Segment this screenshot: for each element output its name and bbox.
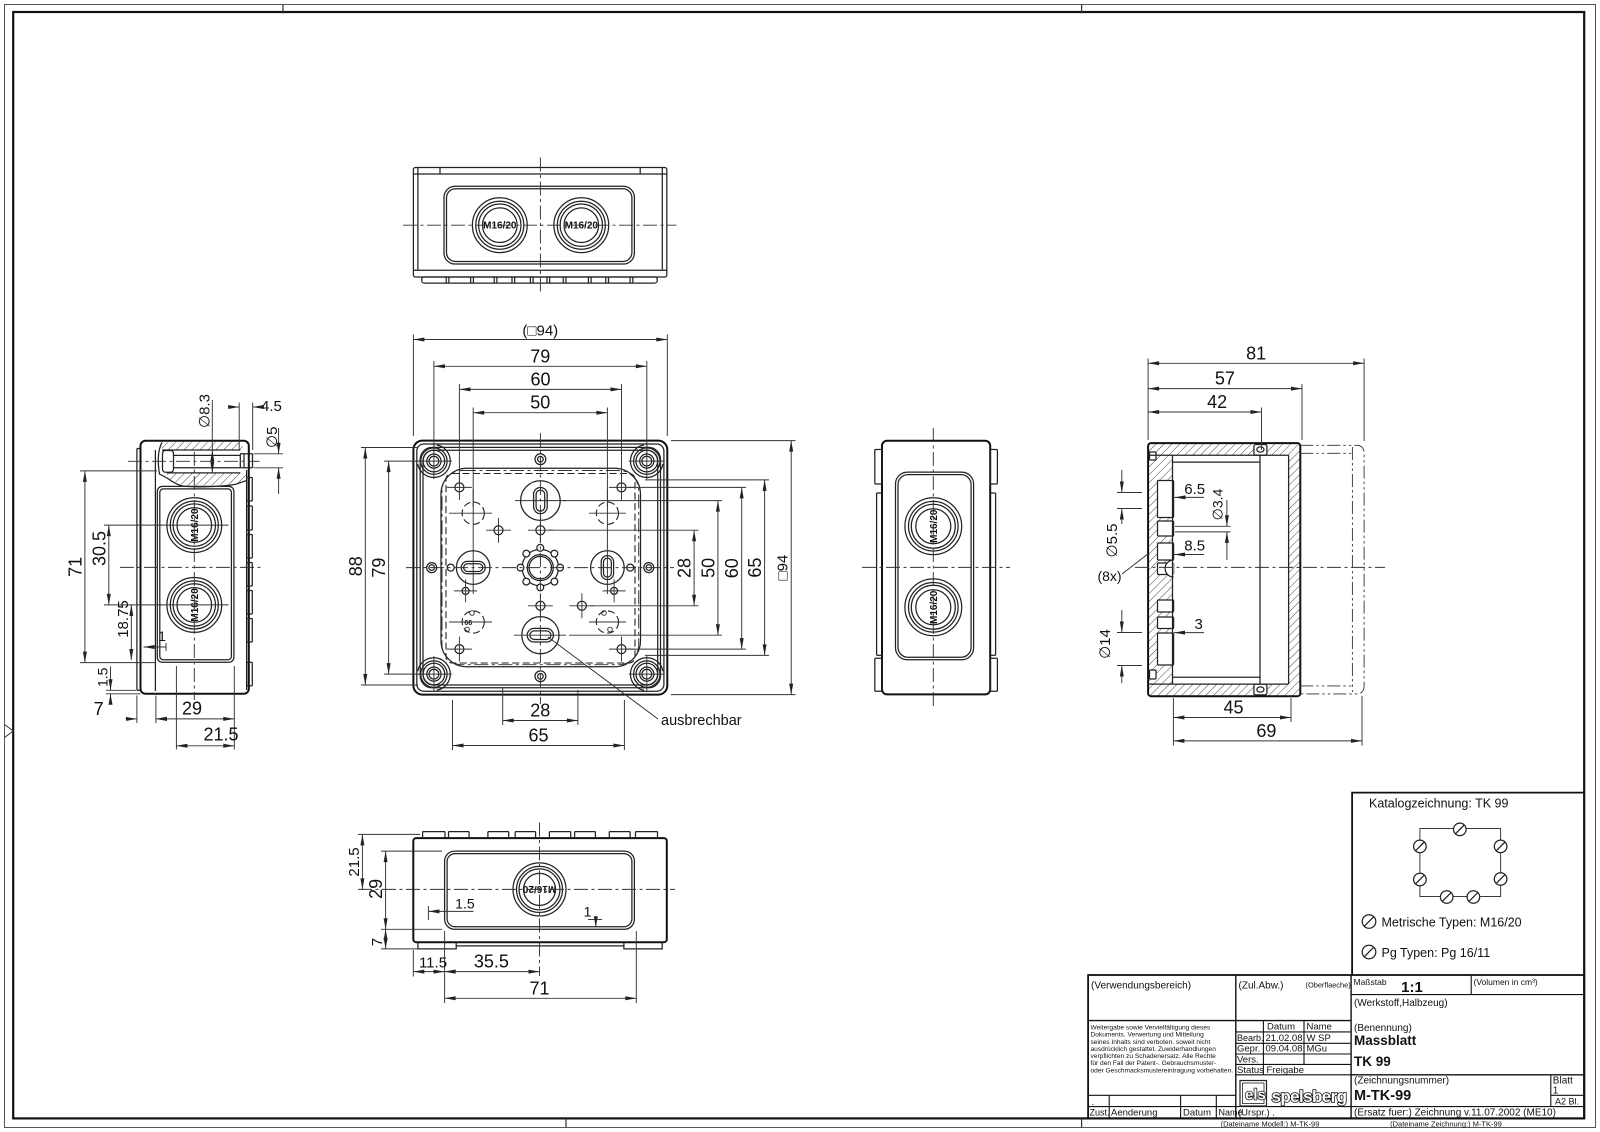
svg-text:Aenderung: Aenderung xyxy=(1111,1108,1157,1119)
svg-text:(□94): (□94) xyxy=(522,323,558,340)
svg-text:29: 29 xyxy=(366,879,386,899)
svg-text:21.5: 21.5 xyxy=(203,725,238,745)
svg-text:79: 79 xyxy=(530,346,550,366)
svg-text:1: 1 xyxy=(158,628,166,644)
svg-text:Maßstab: Maßstab xyxy=(1354,977,1387,987)
svg-text:8.5: 8.5 xyxy=(1184,538,1205,555)
svg-text:Vers.: Vers. xyxy=(1237,1054,1259,1065)
svg-text:(8x): (8x) xyxy=(1097,568,1121,584)
svg-text:Zust.: Zust. xyxy=(1090,1108,1110,1118)
svg-text:A2 Bl.: A2 Bl. xyxy=(1555,1097,1579,1107)
svg-text:1:1: 1:1 xyxy=(1401,979,1423,996)
svg-text:.: . xyxy=(1092,1097,1095,1108)
svg-text:M16/20: M16/20 xyxy=(929,590,940,624)
svg-text:∅8.3: ∅8.3 xyxy=(197,394,214,428)
svg-text:71: 71 xyxy=(65,557,85,577)
svg-text:1.5: 1.5 xyxy=(95,667,111,687)
svg-text:W SP: W SP xyxy=(1307,1033,1331,1044)
svg-text:M-TK-99: M-TK-99 xyxy=(1354,1088,1411,1104)
svg-text:7: 7 xyxy=(94,699,104,719)
svg-text:21.02.08: 21.02.08 xyxy=(1266,1033,1303,1044)
svg-text:29: 29 xyxy=(182,699,202,719)
svg-text:Weitergabe sowie Vervielfältig: Weitergabe sowie Vervielfältigung dieses xyxy=(1091,1025,1211,1032)
svg-text:45: 45 xyxy=(1223,698,1243,718)
svg-text:7: 7 xyxy=(369,938,386,946)
svg-text:09.04.08: 09.04.08 xyxy=(1266,1044,1303,1055)
svg-text:50: 50 xyxy=(530,393,550,413)
svg-text:els: els xyxy=(1245,1087,1266,1104)
svg-text:Datum: Datum xyxy=(1267,1022,1295,1033)
svg-text:(Zul.Abw.): (Zul.Abw.) xyxy=(1239,981,1284,992)
svg-text:Status: Status xyxy=(1237,1065,1264,1076)
svg-text:1.5: 1.5 xyxy=(455,896,475,912)
svg-text:71: 71 xyxy=(529,978,549,998)
svg-text:(Verwendungsbereich): (Verwendungsbereich) xyxy=(1091,981,1191,992)
svg-text:4.5: 4.5 xyxy=(261,398,282,415)
svg-text:MGu: MGu xyxy=(1307,1044,1328,1055)
svg-text:28: 28 xyxy=(675,558,695,578)
svg-text:(Oberflaeche): (Oberflaeche) xyxy=(1306,981,1351,990)
svg-text:Pg Typen: Pg 16/11: Pg Typen: Pg 16/11 xyxy=(1382,946,1491,960)
svg-text:Datum: Datum xyxy=(1183,1108,1211,1119)
svg-text:21.5: 21.5 xyxy=(346,847,363,876)
svg-text:∅3.4: ∅3.4 xyxy=(1210,488,1226,520)
svg-text:Metrische Typen: M16/20: Metrische Typen: M16/20 xyxy=(1382,916,1522,930)
svg-text:6.5: 6.5 xyxy=(1184,481,1205,498)
svg-text:(Volumen in cm³): (Volumen in cm³) xyxy=(1474,977,1538,987)
svg-text:65: 65 xyxy=(745,558,765,578)
svg-text:(Ersatz fuer:) Zeichnung v.11: (Ersatz fuer:) Zeichnung v.11.07.2002 (M… xyxy=(1354,1108,1556,1119)
svg-text:69: 69 xyxy=(1256,721,1276,741)
svg-text:1: 1 xyxy=(1553,1086,1559,1097)
svg-text:(Werkstoff,Halbzeug): (Werkstoff,Halbzeug) xyxy=(1354,998,1448,1009)
svg-text:oder Geschmacksmustereintragun: oder Geschmacksmustereintragung vorbehal… xyxy=(1091,1067,1234,1074)
svg-text:TK 99: TK 99 xyxy=(1354,1054,1391,1069)
svg-text:Freigabe: Freigabe xyxy=(1267,1065,1305,1076)
svg-text:11.5: 11.5 xyxy=(419,955,447,972)
svg-text:(Urspr.) .: (Urspr.) . xyxy=(1238,1108,1275,1119)
svg-text:M16/20: M16/20 xyxy=(483,221,517,232)
svg-text:42: 42 xyxy=(1207,392,1227,412)
svg-text:81: 81 xyxy=(1246,343,1266,363)
svg-text:seines Inhalts sind verboten.: seines Inhalts sind verboten. soweit nic… xyxy=(1091,1039,1211,1046)
svg-text:Massblatt: Massblatt xyxy=(1354,1033,1417,1048)
svg-text:35.5: 35.5 xyxy=(474,952,509,972)
svg-text:88: 88 xyxy=(346,556,366,576)
svg-text:30.5: 30.5 xyxy=(89,531,109,566)
svg-text:∅5.5: ∅5.5 xyxy=(1104,524,1121,558)
svg-text:66: 66 xyxy=(464,620,472,627)
svg-text:M16/20: M16/20 xyxy=(565,221,599,232)
svg-text:(Dateiname Modell:) M-TK-99: (Dateiname Modell:) M-TK-99 xyxy=(1221,1120,1320,1129)
svg-text:57: 57 xyxy=(1215,369,1235,389)
svg-text:79: 79 xyxy=(369,558,389,578)
svg-text:spelsberg: spelsberg xyxy=(1272,1087,1347,1106)
svg-text:M16/20: M16/20 xyxy=(929,509,940,543)
svg-text:1: 1 xyxy=(584,904,592,920)
svg-text:28: 28 xyxy=(530,701,550,721)
svg-text:für den Fall der Patent-. Gebr: für den Fall der Patent-. Gebrauchsmuste… xyxy=(1091,1060,1217,1067)
svg-text:ausbrechbar: ausbrechbar xyxy=(661,713,742,729)
svg-text:(Zeichnungsnummer): (Zeichnungsnummer) xyxy=(1354,1076,1449,1087)
svg-text:3: 3 xyxy=(1195,616,1203,633)
svg-text:60: 60 xyxy=(722,558,742,578)
svg-text:∅14: ∅14 xyxy=(1097,629,1114,659)
svg-text:Bearb.: Bearb. xyxy=(1237,1033,1264,1043)
svg-text:65: 65 xyxy=(528,726,548,746)
svg-text:50: 50 xyxy=(698,558,718,578)
svg-text:Dokuments. Verwertung und Mitt: Dokuments. Verwertung und Mitteilung xyxy=(1091,1032,1205,1039)
svg-text:18.75: 18.75 xyxy=(115,600,132,638)
svg-text:Katalogzeichnung: TK 99: Katalogzeichnung: TK 99 xyxy=(1369,797,1509,811)
svg-text:Gepr.: Gepr. xyxy=(1237,1044,1260,1055)
svg-text:verpflichten zu Schadenersatz.: verpflichten zu Schadenersatz. Alle Rech… xyxy=(1091,1053,1217,1060)
svg-text:□94: □94 xyxy=(775,555,792,581)
svg-text:60: 60 xyxy=(530,369,550,389)
svg-text:(Dateiname Zeichnung:) M-TK-99: (Dateiname Zeichnung:) M-TK-99 xyxy=(1390,1120,1502,1129)
svg-text:Name: Name xyxy=(1307,1022,1332,1033)
svg-text:ausdrücklich gestattet. Zuwide: ausdrücklich gestattet. Zuwiderhandlunge… xyxy=(1091,1046,1217,1053)
